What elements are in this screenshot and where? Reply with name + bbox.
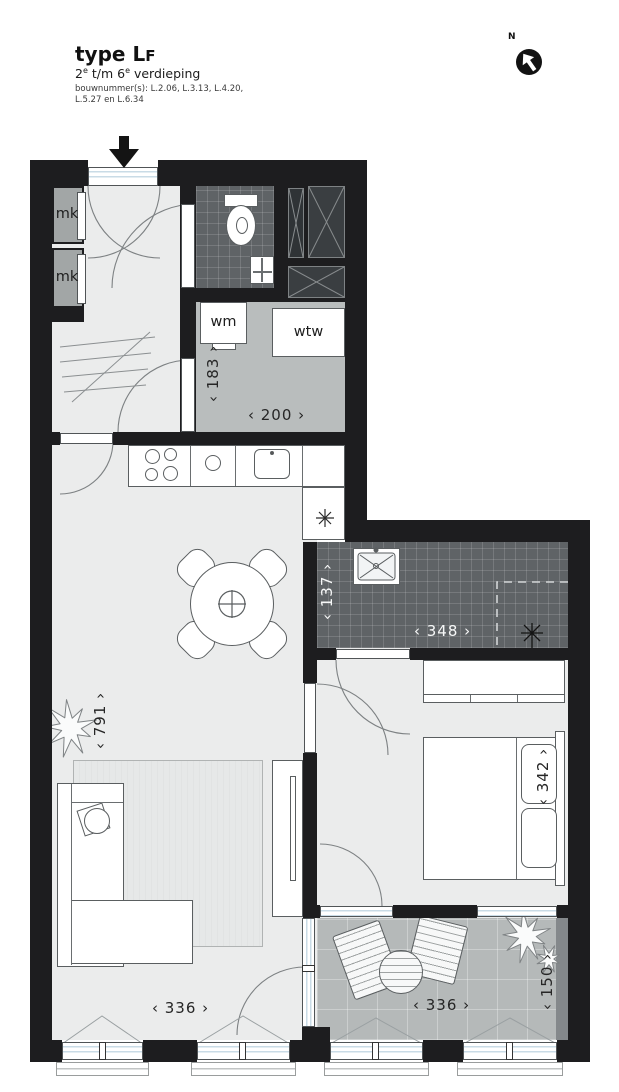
wall: [143, 1040, 197, 1062]
wall: [557, 905, 568, 918]
plan-type-title: type L: [75, 42, 145, 66]
window-sill: [324, 1062, 429, 1076]
sink-faucet: [270, 451, 274, 455]
pillow: [521, 808, 557, 868]
bedroom-balcony-door: [320, 906, 393, 917]
window-mullion: [372, 1042, 379, 1060]
wardrobe-shelf: [423, 694, 565, 703]
wall: [303, 753, 317, 918]
sofa-pillow: [84, 808, 110, 834]
bathroom-door: [336, 649, 410, 659]
wall: [274, 184, 286, 302]
window-mullion: [302, 965, 315, 972]
installation-shaft: [288, 266, 345, 298]
entrance-arrow-icon: [104, 136, 146, 172]
counter-divider: [302, 446, 303, 486]
wall: [52, 306, 84, 322]
sofa-chaise: [71, 900, 193, 964]
dim-utility-width: ‹ 200 ›: [248, 406, 298, 424]
window-sill: [56, 1062, 149, 1076]
dim-living-width: ‹ 336 ›: [152, 999, 202, 1017]
wall: [568, 542, 590, 1062]
wall: [30, 1040, 62, 1062]
window-mullion: [506, 1042, 513, 1060]
kitchen-corner-unit: [302, 487, 345, 540]
wall: [317, 648, 336, 660]
wall: [52, 432, 60, 445]
tv: [290, 776, 296, 881]
room-label-mk-1: mk: [52, 206, 82, 222]
floor-range-subtitle: 2e t/m 6e verdieping: [75, 66, 200, 81]
wall: [30, 160, 52, 1062]
dim-balcony-width: ‹ 336 ›: [413, 996, 463, 1014]
wall: [158, 160, 367, 186]
window-mullion: [239, 1042, 246, 1060]
bedroom-door: [304, 683, 316, 753]
dim-living-depth: ‹ 791 ›: [91, 707, 109, 749]
utility-door: [181, 358, 195, 432]
installation-shaft: [308, 186, 345, 258]
wall: [345, 184, 367, 542]
bedroom-window: [477, 906, 557, 917]
handbasin-line: [261, 258, 263, 282]
wall: [423, 1040, 463, 1062]
window-sill: [191, 1062, 296, 1076]
room-label-wtw: wtw: [272, 324, 345, 340]
wall: [303, 542, 317, 683]
north-arrow-icon: [508, 40, 554, 86]
living-balcony-glazing: [302, 918, 315, 1027]
window-sill: [457, 1062, 563, 1076]
toilet-bowl-inner: [236, 217, 248, 234]
toilet-door: [181, 204, 195, 288]
handbasin-line: [253, 271, 272, 273]
wardrobe-divider: [470, 695, 471, 702]
cooktop-burner: [164, 448, 177, 461]
page-title: type LF: [75, 42, 155, 66]
wall: [30, 160, 88, 186]
wall: [345, 520, 590, 542]
cooktop-burner: [145, 468, 158, 481]
washbasin: [353, 548, 400, 585]
sofa-back-line: [71, 784, 72, 965]
dim-bathroom-depth: ‹ 137 ›: [318, 578, 336, 620]
living-room-door: [60, 433, 113, 444]
wall: [393, 905, 477, 918]
dim-balcony-depth: ‹ 150 ›: [538, 968, 556, 1010]
wardrobe-divider: [517, 695, 518, 702]
counter-divider: [190, 446, 191, 486]
wall: [196, 288, 286, 302]
cooktop-burner: [163, 466, 178, 481]
wall: [113, 432, 345, 445]
bouwnummers-line-2: L.5.27 en L.6.34: [75, 95, 144, 106]
bouwnummers-line-1: bouwnummer(s): L.2.06, L.3.13, L.4.20,: [75, 84, 243, 95]
dining-table: [190, 562, 274, 646]
installation-shaft: [288, 188, 304, 258]
room-label-wm: wm: [200, 314, 247, 330]
dim-bathroom-width: ‹ 348 ›: [414, 622, 464, 640]
dim-bedroom-depth: ‹ 342 ›: [534, 763, 552, 805]
bed-divider: [516, 738, 517, 879]
kitchen-small-circle: [205, 455, 221, 471]
balcony-table: [379, 950, 423, 994]
wardrobe: [423, 660, 565, 698]
floor-plan: type LF 2e t/m 6e verdieping bouwnummer(…: [0, 0, 619, 1092]
wall: [410, 648, 568, 660]
wall: [302, 1027, 330, 1047]
room-label-mk-2: mk: [52, 269, 82, 285]
kitchen-counter: [128, 445, 345, 487]
dim-utility-depth: ‹ 183 ›: [204, 360, 222, 402]
plan-type-suffix: F: [145, 47, 155, 65]
tv-cabinet: [272, 760, 303, 917]
counter-divider: [235, 446, 236, 486]
cooktop-burner: [145, 449, 160, 464]
window-mullion: [99, 1042, 106, 1060]
wall: [557, 1040, 590, 1062]
wall: [303, 905, 320, 918]
